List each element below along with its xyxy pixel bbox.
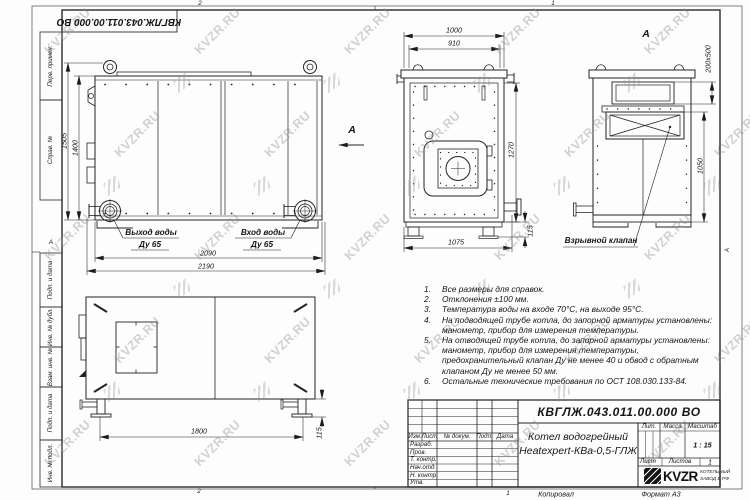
inlet-label: Вход воды — [241, 229, 285, 237]
zone-marker: 1 — [551, 0, 554, 6]
view-arrow-label: А — [348, 125, 356, 136]
dim-bottom-span: 1800 — [191, 427, 207, 434]
zone-marker: А — [725, 248, 731, 252]
dim-front-base-width: 1075 — [448, 238, 464, 245]
rear-view-title: А — [642, 29, 650, 40]
tb-sheets-value: 1 — [708, 458, 712, 465]
dim-front-foot-height: 115 — [526, 225, 533, 236]
tb-role-nachotd: Нач.отд. — [410, 465, 436, 471]
explosion-valve-label: Взрывной клапан — [565, 237, 638, 245]
dim-rear-height: 1050 — [696, 158, 703, 174]
outlet-dn-label: Ду 65 — [139, 241, 161, 249]
dim-side-total-width: 2190 — [198, 262, 214, 269]
zone-marker: 2 — [198, 0, 201, 6]
brand-sub-line2: ЗАВОД В РФ — [700, 478, 729, 483]
tb-role-razrab: Разраб. — [410, 442, 432, 448]
tb-header-data: Дата — [497, 434, 513, 440]
stamp-vzam-inv: Взам. инв. № — [48, 348, 54, 386]
bottom-view — [79, 297, 326, 441]
product-name-line1: Котел водогрейный — [528, 432, 628, 443]
tb-scale-value: 1 : 15 — [693, 441, 711, 448]
tb-role-tkontr: Т. контр. — [410, 457, 437, 463]
tb-mass-label: Масса — [663, 424, 681, 430]
note-item: 2.Отклонения ±100 мм. — [424, 294, 716, 304]
tb-sheets-label: Листов — [669, 459, 692, 465]
top-doc-number: КВГЛЖ.043.011.00.000 ВО — [57, 16, 182, 26]
zone-marker: А — [49, 240, 53, 246]
footer-copied: Копировал — [538, 490, 574, 497]
stamp-inv-dubl: Инв. № дубл. — [48, 308, 54, 346]
zone-marker: 2 — [197, 489, 200, 495]
dim-bottom-foot-height: 115 — [315, 427, 322, 438]
dim-side-body-height: 1400 — [71, 140, 78, 156]
tb-role-prov: Пров. — [410, 450, 426, 456]
tb-scale-label: Масштаб — [688, 424, 717, 430]
tb-header-list: Лист — [422, 434, 438, 440]
stamp-inv-podl: Инв. № подл. — [48, 444, 54, 482]
brand-name: KVZR — [663, 470, 698, 484]
tb-header-doc: № докум. — [443, 434, 470, 440]
product-name-line2: Heatexpert-КВа-0,5-ГЛЖ — [519, 446, 637, 457]
kvzr-logo-icon — [644, 468, 661, 484]
tb-role-utv: Утв. — [410, 480, 424, 486]
stamp-podp-data2: Подп. и дата — [48, 394, 54, 433]
note-item: 1.Все размеры для справок. — [424, 284, 716, 294]
note-item: 3.Температура воды на входе 70°С, на вых… — [424, 304, 716, 314]
stamp-podp-data: Подп. и дата — [48, 261, 54, 300]
drawing-linework — [0, 0, 750, 500]
dim-side-total-height: 1505 — [60, 133, 67, 149]
stamp-perv-primen: Перв. примен. — [48, 45, 54, 86]
note-item: 6.Остальные технические требования по ОС… — [424, 376, 716, 386]
brand-sub-line1: КОТЕЛЬНЫЙ — [700, 471, 730, 476]
side-view — [64, 61, 364, 276]
dim-front-inner-width: 910 — [448, 39, 460, 46]
inlet-dn-label: Ду 65 — [251, 241, 273, 249]
drawing-sheet: KVZR.RUKVZR.RUKVZR.RUKVZR.RUKVZR.RUKVZR.… — [0, 0, 750, 500]
stamp-sprav-no: Справ. № — [48, 136, 54, 164]
dim-front-height: 1270 — [507, 142, 514, 158]
title-doc-number: КВГЛЖ.043.011.00.000 ВО — [537, 406, 700, 418]
footer-format: Формат А3 — [641, 490, 680, 497]
note-item: 5.На отводящей трубе котла, до запорной … — [424, 335, 716, 376]
dim-rear-valve-size: 200х500 — [704, 45, 711, 73]
outlet-label: Выход воды — [125, 229, 176, 237]
dim-front-width: 1000 — [446, 26, 462, 33]
tb-header-podp: Подп. — [476, 434, 492, 440]
tb-sheet-label: Лист — [640, 459, 656, 465]
tb-lit-label: Лит. — [642, 424, 657, 430]
zone-marker: 1 — [506, 490, 509, 496]
technical-notes: 1.Все размеры для справок. 2.Отклонения … — [424, 284, 716, 386]
dim-side-body-width: 2090 — [200, 249, 216, 256]
tb-header-izm: Изм. — [408, 434, 421, 440]
tb-role-nkontr: Н. контр. — [410, 473, 438, 479]
note-item: 4.На подводящей трубе котла, до запорной… — [424, 315, 716, 335]
rear-view — [563, 65, 716, 247]
